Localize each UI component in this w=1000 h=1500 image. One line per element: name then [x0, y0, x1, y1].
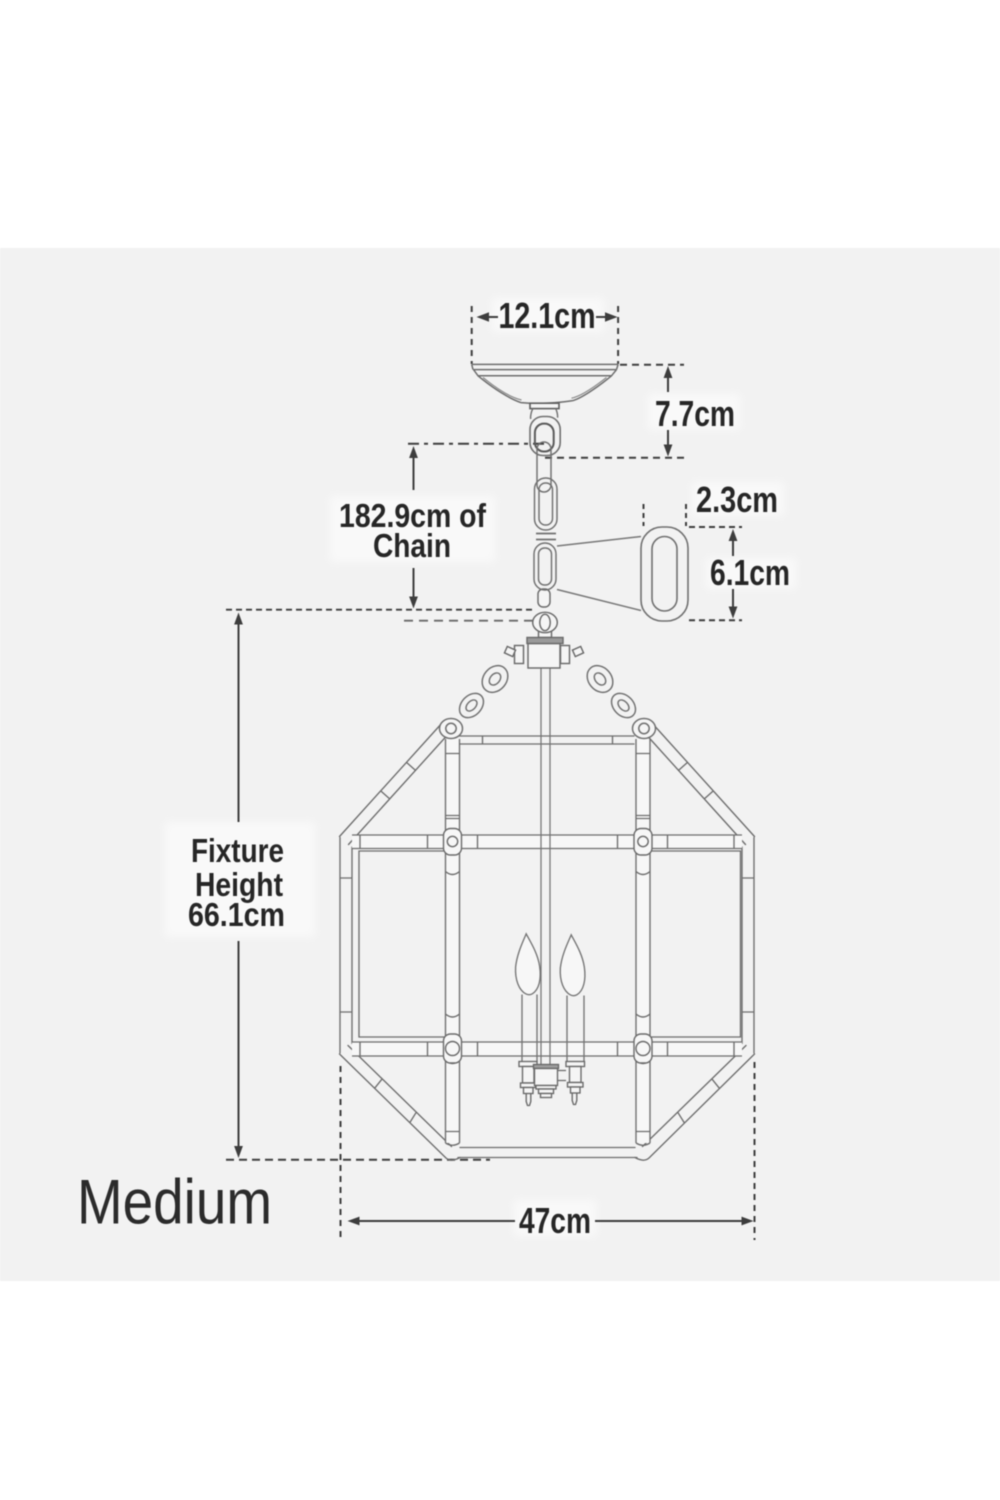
- svg-text:7.7cm: 7.7cm: [655, 393, 735, 434]
- svg-text:Chain: Chain: [373, 527, 451, 564]
- svg-text:66.1cm: 66.1cm: [188, 896, 285, 933]
- svg-text:47cm: 47cm: [519, 1200, 591, 1241]
- svg-text:2.3cm: 2.3cm: [696, 479, 778, 520]
- svg-text:12.1cm: 12.1cm: [499, 295, 596, 336]
- svg-text:Fixture: Fixture: [191, 832, 284, 869]
- svg-text:6.1cm: 6.1cm: [710, 552, 790, 593]
- svg-text:Medium: Medium: [77, 1168, 272, 1238]
